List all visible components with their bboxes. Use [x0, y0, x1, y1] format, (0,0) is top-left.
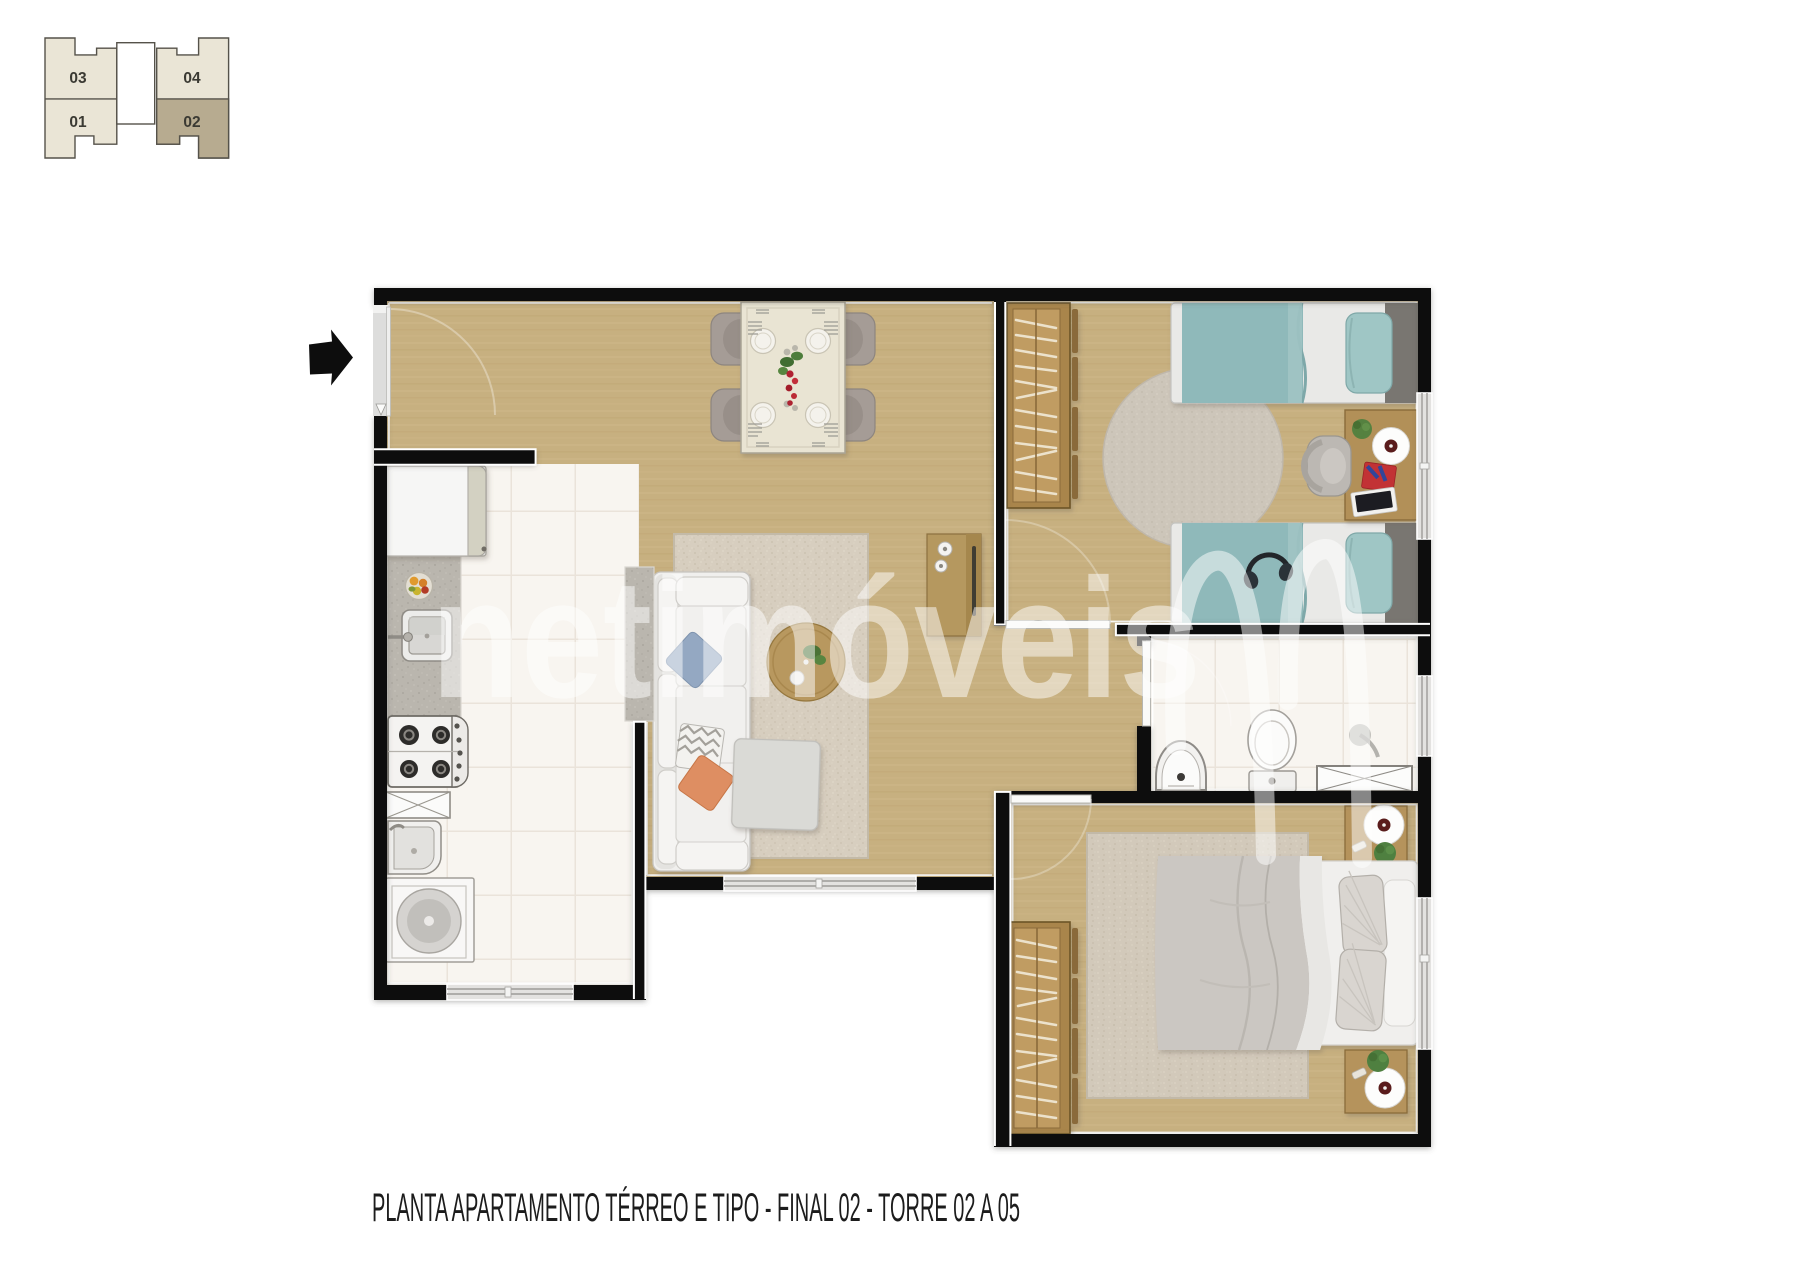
svg-text:netimóveis: netimóveis — [431, 544, 1201, 734]
svg-text:03: 03 — [69, 70, 87, 87]
svg-text:PLANTA APARTAMENTO TÉRREO E TI: PLANTA APARTAMENTO TÉRREO E TIPO - FINAL… — [372, 1185, 1020, 1230]
svg-text:02: 02 — [183, 114, 200, 131]
svg-text:01: 01 — [69, 114, 87, 131]
svg-text:04: 04 — [183, 70, 201, 87]
